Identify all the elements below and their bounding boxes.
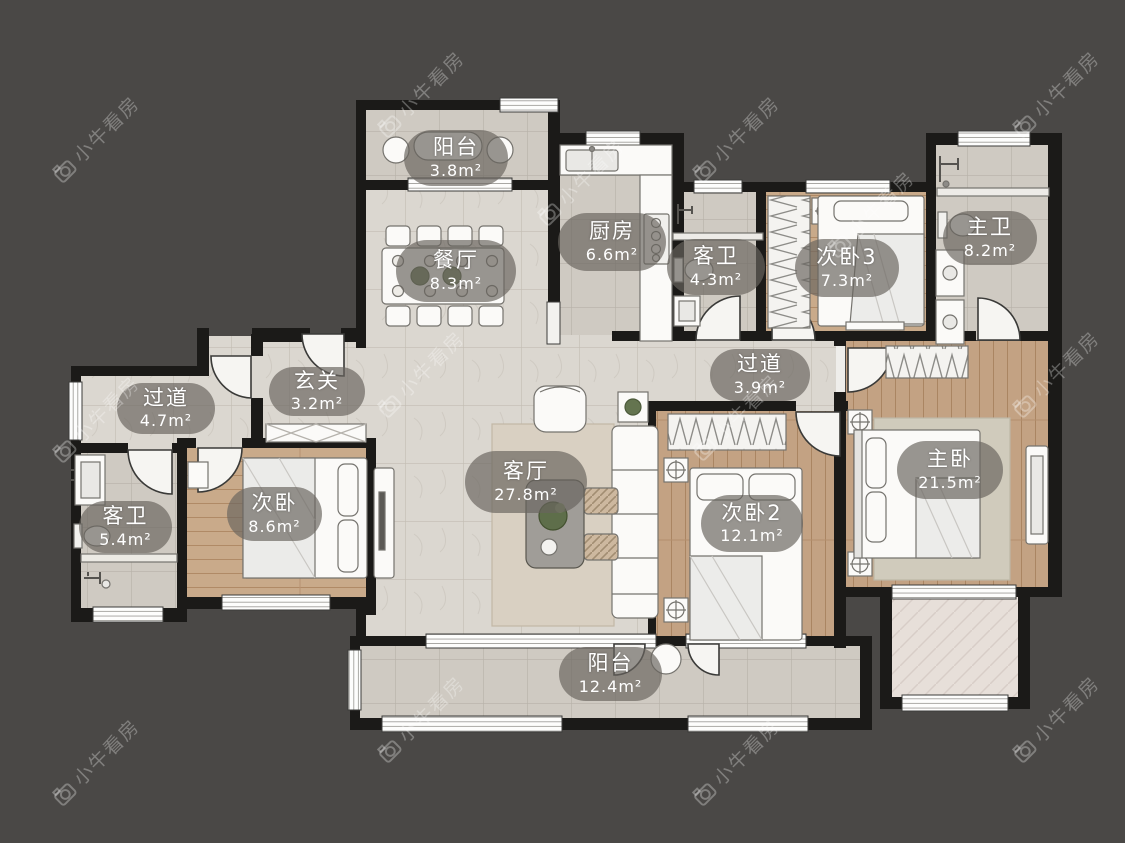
balcony-bottom-items: [651, 644, 681, 674]
bedroom-3-furniture: [768, 196, 924, 330]
entry-shoe-cabinet: [266, 424, 366, 442]
floorplan-page: 阳台3.8m² 餐厅8.3m² 厨房6.6m² 客卫4.3m² 次卧37.3m²…: [0, 0, 1125, 843]
floor-plan-drawing: [0, 0, 1125, 843]
